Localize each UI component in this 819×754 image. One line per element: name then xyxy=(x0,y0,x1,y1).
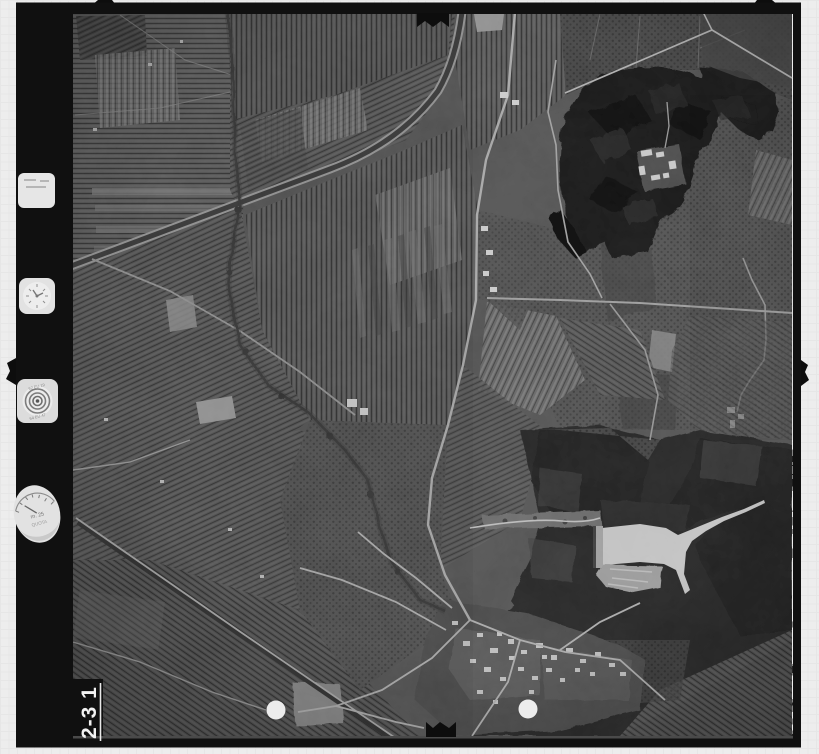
svg-text:2-3 1: 2-3 1 xyxy=(78,686,101,739)
